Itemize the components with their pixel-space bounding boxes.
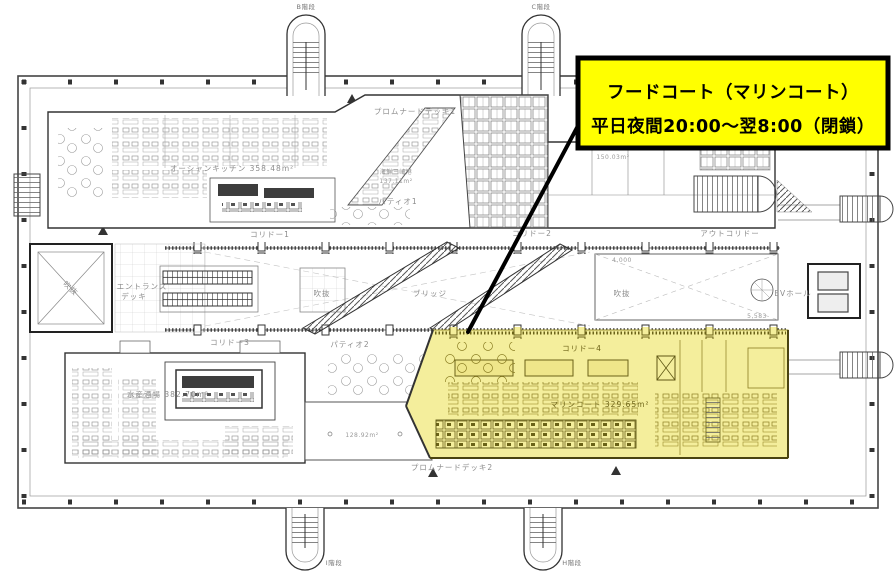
stair-tower-h: H階段	[524, 508, 582, 570]
entrance-deck-label-2: デッキ	[121, 291, 147, 301]
stair-tower-i: I階段	[286, 508, 342, 570]
ev-hall-label: EVホール	[774, 289, 811, 298]
open-deck-area-label: 128.92m²	[345, 432, 378, 439]
left-atrium: 吹抜	[30, 244, 112, 332]
marine-court-label: マリンコート 329.65m²	[551, 400, 650, 409]
corridor4-label: コリドー4	[562, 344, 602, 353]
stair-c-label: C階段	[531, 2, 550, 11]
dim-5583: 5,583	[747, 313, 767, 320]
stair-h-label: H階段	[562, 558, 581, 567]
floor-plan-drawing: B階段 C階段 I階段 H階段	[0, 0, 896, 581]
stair-tower-c: C階段	[522, 2, 560, 96]
kaisen-area-label: 137.11m²	[379, 178, 412, 185]
void-right-label: 吹抜	[614, 288, 631, 298]
patio1-tables	[330, 207, 410, 225]
out-corridor-label: アウトコリドー	[700, 229, 760, 238]
stair-b-label: B階段	[297, 2, 316, 11]
food-court-highlight: コリドー4 マリンコート 329.65m²	[406, 327, 788, 458]
promenade1-label: プロムナードデッキ1	[374, 106, 456, 116]
corridor3-label: コリドー3	[210, 338, 250, 347]
right-void: 吹抜 4,000 5,583	[595, 254, 778, 320]
bridge-label: ブリッジ	[413, 288, 447, 298]
void-center-label: 吹抜	[314, 288, 331, 298]
external-stair-left	[14, 174, 40, 216]
patio2-label: パティオ2	[330, 340, 369, 349]
suisan-label: 水産酒場 382.70m²	[127, 389, 209, 399]
promenade2-label: プロムナードデッキ2	[411, 462, 493, 472]
stair-i-label: I階段	[326, 558, 342, 567]
umi-area-label: 150.03m²	[596, 154, 629, 161]
dim-4000: 4,000	[612, 257, 632, 264]
patio1-label: パティオ1	[378, 197, 417, 206]
ocean-kitchen-label: オーシャンキッチン 358.48m²	[170, 164, 294, 173]
floor-plan-page: B階段 C階段 I階段 H階段	[0, 0, 896, 581]
stair-tower-b: B階段	[287, 2, 325, 96]
corridor1-label: コリドー1	[250, 230, 290, 239]
kaisen-name-label: 海鮮三崎港	[380, 168, 413, 176]
callout-line1: フードコート（マリンコート）	[607, 82, 859, 103]
callout-line2: 平日夜間20:00～翌8:00（閉鎖）	[591, 116, 875, 137]
